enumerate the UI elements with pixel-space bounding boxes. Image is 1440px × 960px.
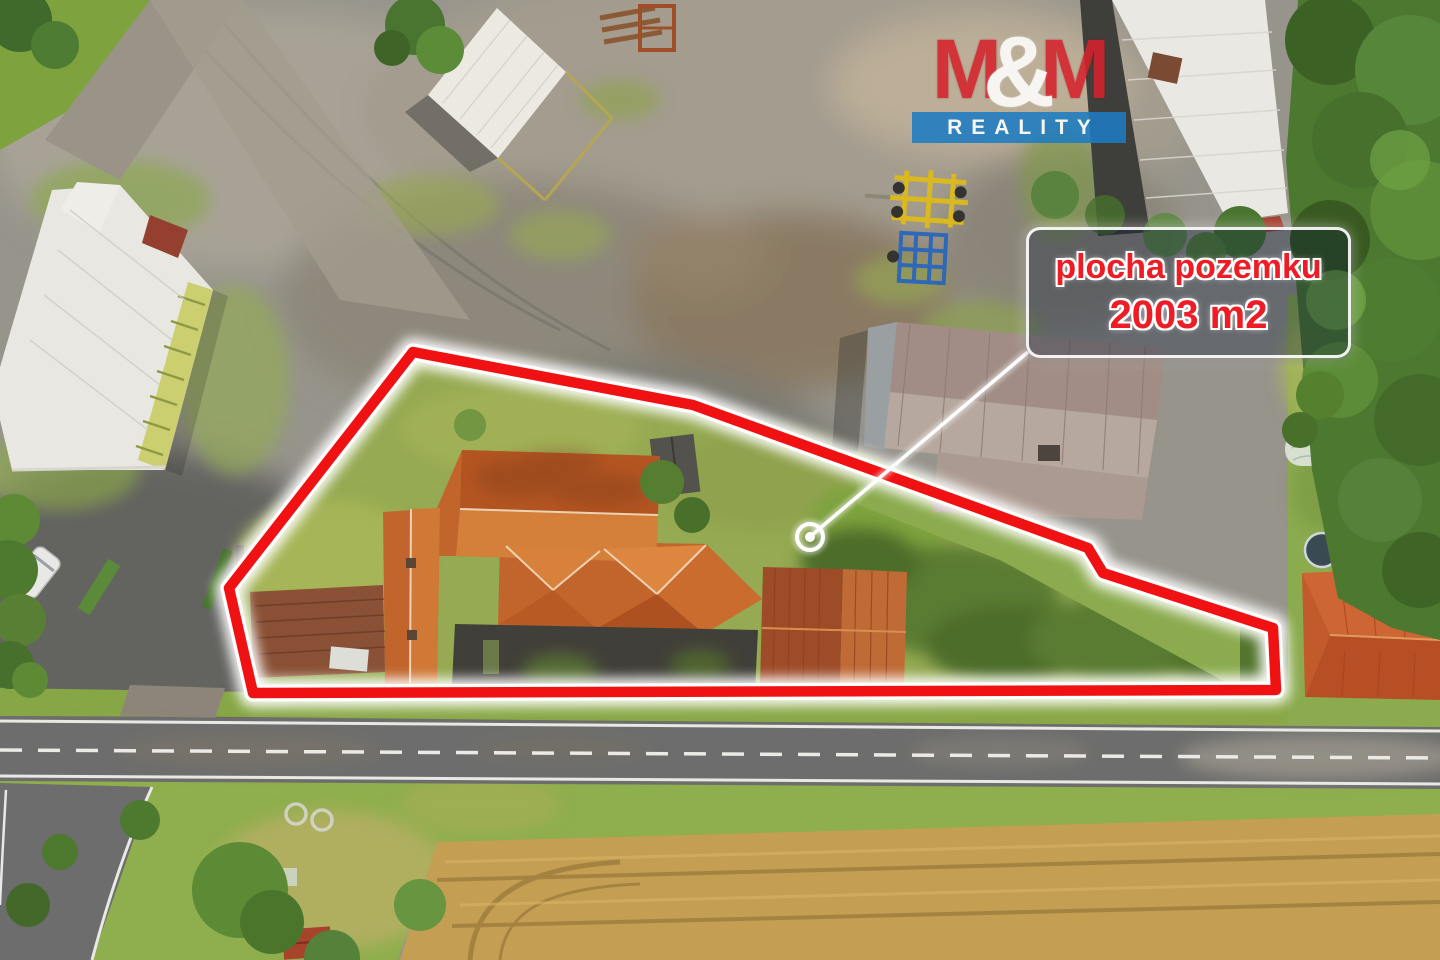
- aerial-photo: M & M REALITY plocha pozemku 2003 m2: [0, 0, 1440, 960]
- area-label-line1: plocha pozemku: [1055, 248, 1321, 287]
- aerial-scene: [0, 0, 1440, 960]
- logo-ampersand: &: [983, 22, 1055, 122]
- area-label-line2: 2003 m2: [1110, 293, 1268, 338]
- main-road: [0, 716, 1440, 789]
- area-label: plocha pozemku 2003 m2: [1026, 227, 1351, 358]
- agency-logo-mm: M & M: [912, 30, 1126, 108]
- agency-logo: M & M REALITY: [912, 30, 1126, 143]
- location-marker-icon: [797, 524, 823, 550]
- barn-east: [760, 567, 907, 690]
